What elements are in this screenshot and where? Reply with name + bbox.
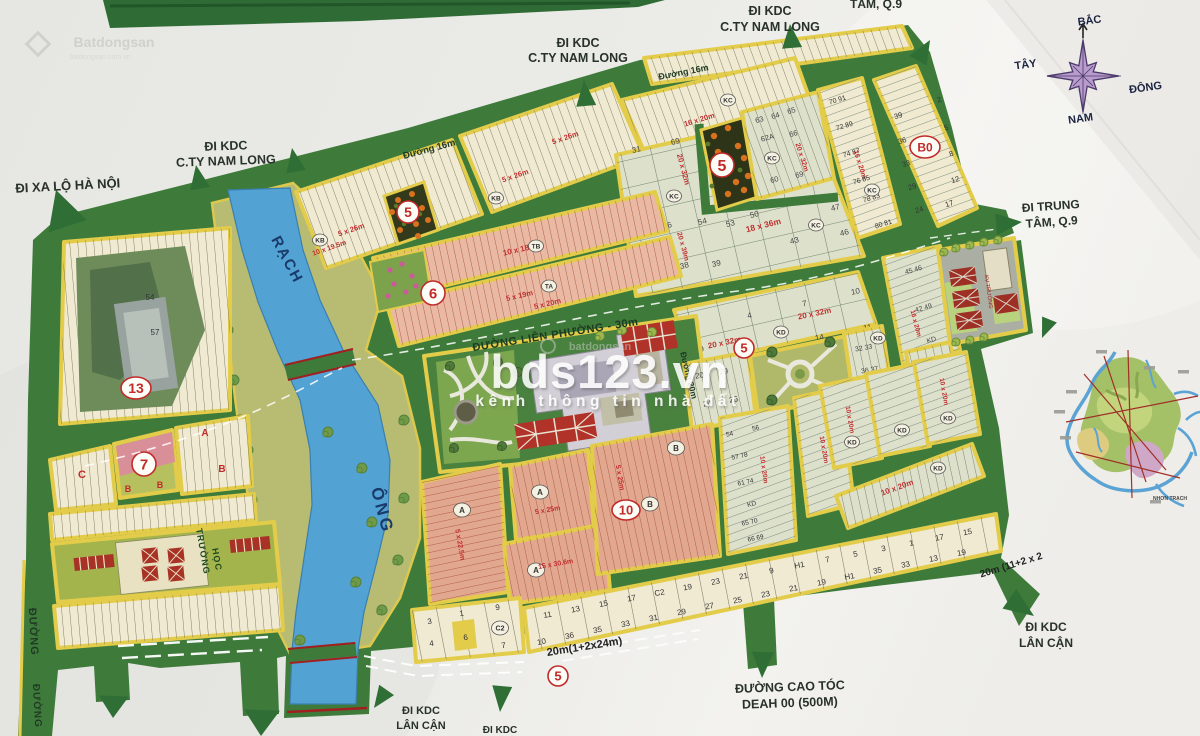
svg-text:57: 57 <box>151 328 160 337</box>
svg-text:LÂN CẬN: LÂN CẬN <box>1019 635 1073 650</box>
svg-text:7: 7 <box>140 456 148 473</box>
svg-text:ĐƯỜNG: ĐƯỜNG <box>26 608 41 657</box>
svg-text:TÂM, Q.9: TÂM, Q.9 <box>850 0 902 11</box>
svg-text:A: A <box>201 428 208 439</box>
svg-text:A: A <box>537 488 543 497</box>
svg-text:C2: C2 <box>496 625 505 632</box>
svg-text:LÂN CẬN: LÂN CẬN <box>396 719 446 732</box>
svg-text:5: 5 <box>404 204 412 220</box>
svg-text:5: 5 <box>740 341 747 356</box>
svg-text:Batdongsan: Batdongsan <box>74 34 155 50</box>
svg-text:B: B <box>125 484 132 494</box>
svg-text:KC: KC <box>723 97 733 104</box>
svg-text:ĐI KDC: ĐI KDC <box>1025 620 1067 634</box>
svg-text:KD: KD <box>943 415 953 422</box>
svg-text:ĐI KDC: ĐI KDC <box>748 4 791 18</box>
svg-text:B: B <box>673 444 679 453</box>
svg-text:TA: TA <box>545 283 553 290</box>
svg-text:6: 6 <box>429 285 437 302</box>
svg-text:KB: KB <box>491 195 501 202</box>
svg-text:KD: KD <box>776 329 786 336</box>
svg-text:10: 10 <box>619 503 633 518</box>
svg-text:B: B <box>157 480 164 490</box>
svg-text:5: 5 <box>554 669 561 684</box>
svg-text:ĐI KDC: ĐI KDC <box>402 705 440 717</box>
svg-text:KD: KD <box>897 427 907 434</box>
svg-text:bds123.vn: bds123.vn <box>491 345 730 398</box>
svg-text:54: 54 <box>146 293 155 302</box>
svg-text:5: 5 <box>718 158 727 175</box>
svg-text:B: B <box>647 500 653 509</box>
svg-text:ĐI KDC: ĐI KDC <box>204 138 248 153</box>
svg-text:KD: KD <box>873 335 883 342</box>
svg-text:ĐI KDC: ĐI KDC <box>483 725 517 736</box>
svg-text:C.TY NAM LONG: C.TY NAM LONG <box>720 20 820 34</box>
svg-text:KC: KC <box>767 155 777 162</box>
svg-text:ĐI KDC: ĐI KDC <box>556 36 599 50</box>
svg-text:KC: KC <box>867 187 877 194</box>
svg-text:13: 13 <box>128 380 144 396</box>
svg-text:KD: KD <box>847 439 857 446</box>
svg-text:KC: KC <box>811 222 821 229</box>
svg-text:B: B <box>218 464 225 475</box>
svg-text:KC: KC <box>669 193 679 200</box>
svg-text:KD: KD <box>933 465 943 472</box>
svg-text:TB: TB <box>532 243 541 250</box>
svg-text:KB: KB <box>315 237 325 244</box>
svg-text:C: C <box>78 469 86 481</box>
svg-text:A: A <box>459 506 465 515</box>
svg-text:batdongsan com vn: batdongsan com vn <box>69 54 130 61</box>
svg-text:C.TY NAM LONG: C.TY NAM LONG <box>528 51 628 65</box>
svg-text:kênh thông tin nhà đất: kênh thông tin nhà đất <box>475 393 740 410</box>
svg-text:B0: B0 <box>917 140 933 154</box>
